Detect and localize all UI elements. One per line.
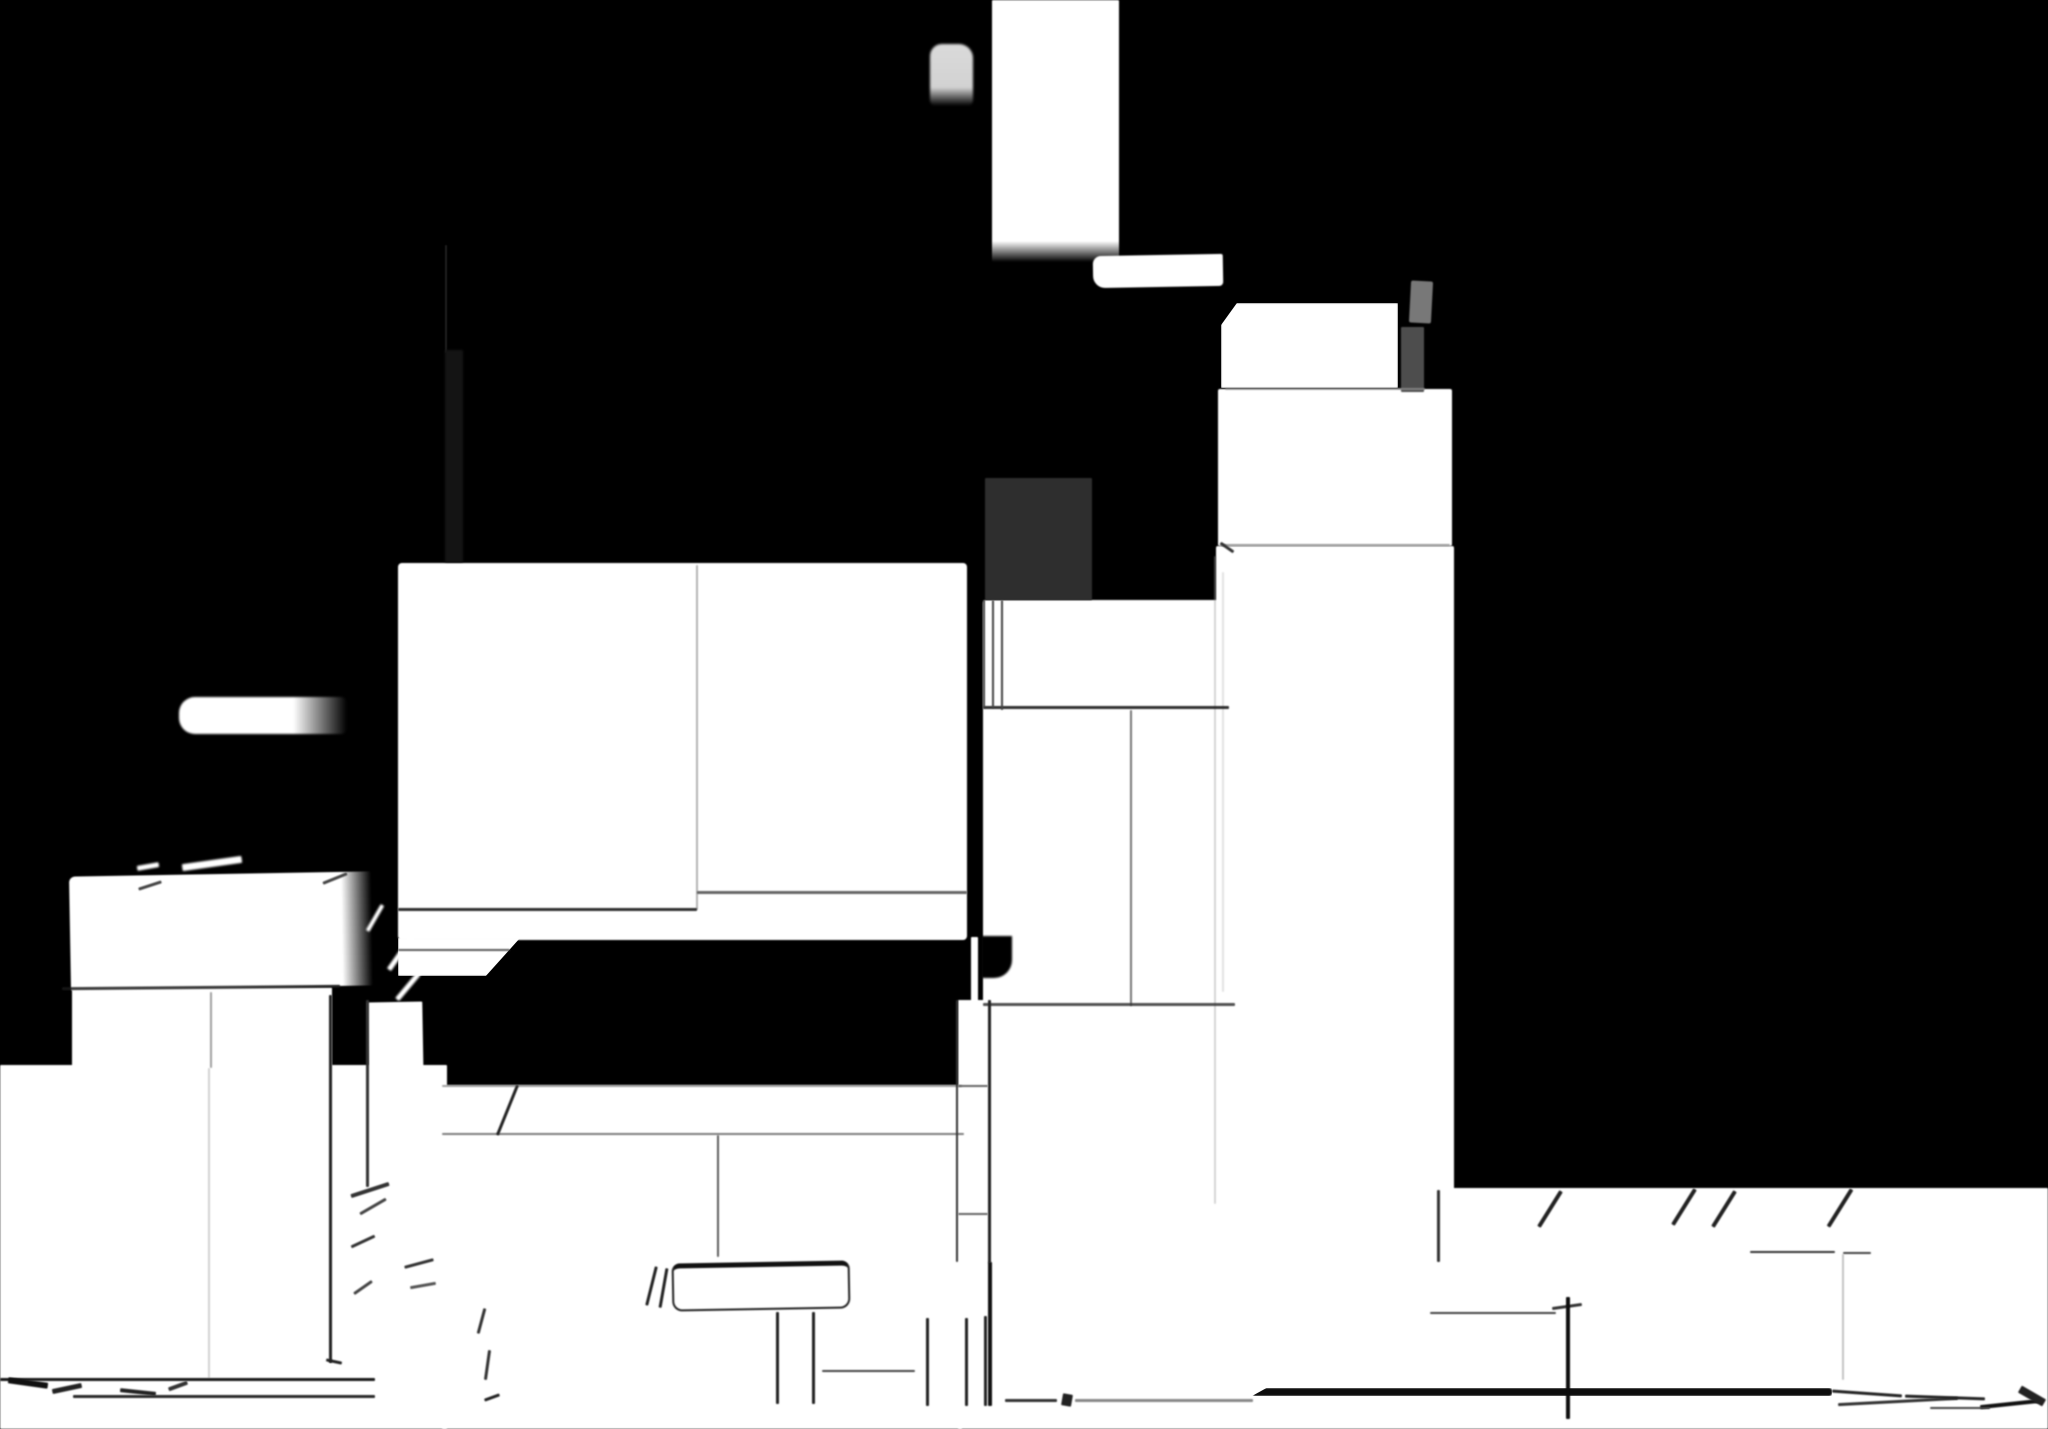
dark-hairline [445, 245, 447, 353]
thin-column-edge-right [988, 1000, 991, 1263]
tail-edge-line [398, 949, 510, 951]
side-pill [179, 697, 347, 734]
center-slab-tail [398, 938, 520, 976]
bench-rail [822, 1370, 915, 1372]
mid-strip-line-2 [992, 600, 994, 708]
top-bar [992, 0, 1119, 262]
post-line-3 [984, 1316, 987, 1406]
tower-cap [1221, 303, 1398, 388]
mid-strip-line-1 [983, 600, 985, 708]
wedge-mark-1 [182, 856, 242, 871]
post-line-1 [926, 1318, 929, 1406]
tower-edge-seam-1 [1214, 556, 1216, 1204]
tower-seam-1 [1225, 388, 1425, 390]
gray-tab [1409, 280, 1433, 323]
wedge-mark-2 [137, 862, 160, 871]
thin-column-edge-left [956, 1000, 958, 1262]
tower-edge-seam-2 [1222, 572, 1224, 992]
slab-vertical-seam [696, 565, 698, 910]
thin-column-joint-1 [958, 1085, 988, 1087]
slab-seam-left [398, 908, 697, 911]
heavy-post-line [988, 1262, 992, 1406]
floor-dash-b [1061, 1393, 1073, 1407]
baseline-left-2 [73, 1395, 375, 1398]
dark-column-shadow [445, 350, 463, 562]
thin-column-joint-2 [958, 1213, 988, 1215]
center-slab [398, 563, 967, 940]
corner-hatch-2 [395, 972, 421, 1001]
mid-column-seam [1130, 710, 1132, 1006]
left-column-seam-1 [210, 992, 212, 1068]
post-line-2 [965, 1318, 968, 1406]
bench-leg-2 [812, 1312, 815, 1404]
dark-panel [985, 478, 1092, 600]
narrow-column-edge [366, 1000, 369, 1187]
left-band [72, 987, 332, 1071]
tower-upper [1218, 389, 1452, 546]
right-dash-1 [1750, 1251, 1835, 1253]
bench-outline [672, 1260, 851, 1311]
floor-left [0, 1065, 447, 1429]
mid-columns [983, 600, 1227, 1202]
mid-seam-top [983, 706, 1229, 709]
floor-seam-drop [717, 1135, 719, 1257]
mid-seam-bottom [983, 1003, 1235, 1006]
right-ledge-line [1430, 1312, 1556, 1314]
left-box [69, 871, 373, 990]
left-column-seam-2 [208, 1068, 210, 1378]
abstract-composition-canvas [0, 0, 2048, 1429]
floor-line-gray [1075, 1399, 1253, 1402]
floor-line-heavy [1252, 1388, 1832, 1396]
ledge-strip [1093, 254, 1224, 288]
bench-leg-1 [776, 1312, 779, 1404]
floor-center-edge [442, 1085, 962, 1087]
baseline-left [0, 1378, 375, 1381]
floor-seam [442, 1133, 964, 1135]
tower-body [1216, 546, 1454, 1206]
mid-columns-notch [981, 936, 1012, 978]
slab-seam-right [697, 891, 967, 894]
top-blob [930, 44, 973, 106]
right-dash-2 [1843, 1252, 1871, 1254]
right-hatch-6 [1930, 1407, 1990, 1409]
thin-pole [971, 937, 978, 1007]
mid-strip-line-3 [1001, 600, 1003, 710]
tower-seam-2 [1220, 544, 1450, 546]
right-faint-post [1842, 1254, 1844, 1380]
floor-center [442, 1085, 962, 1429]
right-post-small [1437, 1190, 1440, 1262]
left-column-edge [329, 995, 332, 1363]
right-post-strong [1566, 1297, 1570, 1419]
gray-post [1401, 327, 1424, 392]
floor-dash-a [1005, 1399, 1057, 1402]
